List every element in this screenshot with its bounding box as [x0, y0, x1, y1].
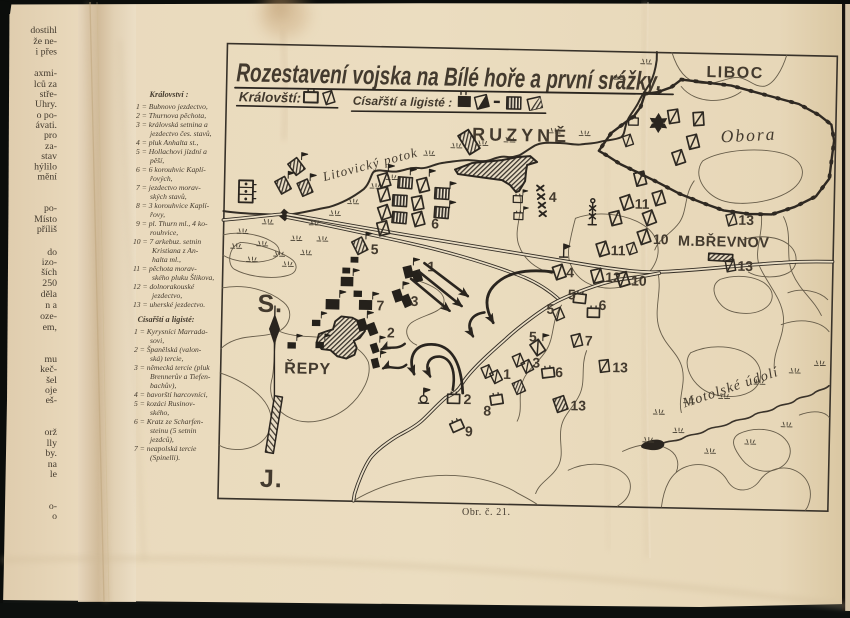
- svg-text:6: 6: [431, 215, 439, 231]
- svg-text:J.: J.: [260, 465, 283, 493]
- svg-text:ského pluku Šlikova,: ského pluku Šlikova,: [152, 272, 214, 282]
- svg-text:halta ml.,: halta ml.,: [152, 255, 181, 264]
- svg-text:pro: pro: [44, 130, 57, 141]
- svg-text:11: 11: [611, 242, 626, 258]
- svg-text:jezdectvo,: jezdectvo,: [151, 291, 182, 300]
- svg-text:mění: mění: [37, 172, 57, 183]
- svg-text:že ne-: že ne-: [33, 36, 57, 47]
- svg-text:4: 4: [566, 264, 574, 280]
- svg-text:řových,: řových,: [150, 174, 173, 183]
- svg-text:i přes: i přes: [36, 47, 58, 58]
- svg-text:eš-: eš-: [46, 395, 57, 406]
- svg-text:5 = Hollachovi jízdní a: 5 = Hollachovi jízdní a: [136, 147, 207, 156]
- svg-text:děla: děla: [41, 289, 58, 300]
- svg-text:11 = pěchota morav-: 11 = pěchota morav-: [133, 264, 197, 273]
- svg-text:Císařští a ligisté:: Císařští a ligisté:: [138, 315, 195, 324]
- svg-text:3: 3: [532, 354, 540, 370]
- svg-text:4 = bavorští harcovníci,: 4 = bavorští harcovníci,: [134, 390, 208, 399]
- svg-text:8 = 3 korouhvice Kaplí-: 8 = 3 korouhvice Kaplí-: [136, 201, 210, 210]
- svg-text:le: le: [50, 469, 58, 480]
- svg-text:axmi-: axmi-: [34, 68, 57, 79]
- svg-text:6: 6: [555, 364, 563, 380]
- svg-text:6: 6: [598, 297, 606, 313]
- svg-text:8: 8: [483, 402, 491, 418]
- svg-text:Kristiana z An-: Kristiana z An-: [151, 246, 199, 255]
- svg-text:ského,: ského,: [150, 408, 169, 417]
- svg-text:řovy,: řovy,: [150, 210, 165, 219]
- svg-text:2 = Thurnova pěchota,: 2 = Thurnova pěchota,: [136, 111, 206, 120]
- svg-text:7: 7: [585, 333, 593, 349]
- svg-text:příliš: příliš: [37, 224, 57, 235]
- svg-text:n a: n a: [45, 300, 57, 311]
- svg-text:steinu (5 setnin: steinu (5 setnin: [150, 426, 197, 435]
- svg-text:4 = pluk Anhalta st.,: 4 = pluk Anhalta st.,: [136, 138, 198, 147]
- svg-text:Královští:: Královští:: [239, 89, 302, 105]
- svg-text:LIBOC: LIBOC: [706, 64, 764, 82]
- svg-text:keč-: keč-: [40, 364, 57, 375]
- svg-text:5: 5: [371, 241, 379, 257]
- svg-text:M.BŘEVNOV: M.BŘEVNOV: [678, 231, 770, 251]
- svg-text:10: 10: [631, 273, 647, 289]
- svg-text:3 = německá tercie (pluk: 3 = německá tercie (pluk: [133, 363, 210, 372]
- svg-text:13 = uherské jezdectvo.: 13 = uherské jezdectvo.: [133, 300, 205, 309]
- svg-text:13: 13: [738, 212, 754, 228]
- svg-text:Brennerův a Tiefen-: Brennerův a Tiefen-: [150, 372, 211, 381]
- svg-text:9 = pl. Thurn ml., 4 ko-: 9 = pl. Thurn ml., 4 ko-: [136, 219, 208, 228]
- svg-text:Obr. č. 21.: Obr. č. 21.: [462, 507, 511, 518]
- svg-text:10: 10: [653, 231, 669, 247]
- svg-text:250: 250: [42, 278, 57, 289]
- svg-text:em,: em,: [43, 322, 57, 333]
- svg-text:2 = Španělská (valon-: 2 = Španělská (valon-: [134, 344, 202, 354]
- svg-text:ších: ších: [41, 267, 57, 278]
- svg-text:by.: by.: [45, 448, 57, 459]
- svg-text:5: 5: [529, 328, 537, 344]
- svg-text:13: 13: [570, 397, 586, 413]
- svg-text:6 = Kratz ze Scharfen-: 6 = Kratz ze Scharfen-: [134, 417, 204, 426]
- svg-text:11: 11: [635, 196, 650, 212]
- svg-text:3 = královská setnina a: 3 = královská setnina a: [135, 120, 208, 129]
- svg-text:rouhvice,: rouhvice,: [150, 228, 178, 237]
- svg-text:(Spinelli).: (Spinelli).: [150, 453, 180, 462]
- svg-text:5 = kozáci Rusinov-: 5 = kozáci Rusinov-: [134, 399, 195, 408]
- svg-text:jezdců),: jezdců),: [149, 435, 174, 444]
- svg-text:ských stavů,: ských stavů,: [150, 192, 187, 201]
- svg-text:2: 2: [387, 324, 395, 340]
- svg-text:orž: orž: [44, 427, 57, 438]
- svg-text:6 = 6 korouhvic Kaplí-: 6 = 6 korouhvic Kaplí-: [136, 165, 206, 174]
- svg-text:10 = 7 arkebuz. setnin: 10 = 7 arkebuz. setnin: [133, 237, 201, 246]
- svg-text:5: 5: [568, 286, 576, 302]
- svg-text:jezdectvo čes. stavů,: jezdectvo čes. stavů,: [149, 129, 212, 138]
- svg-text:3: 3: [410, 293, 418, 309]
- svg-text:S.: S.: [257, 290, 283, 319]
- svg-text:stav: stav: [41, 151, 57, 162]
- svg-text:13: 13: [612, 359, 628, 375]
- svg-text:Království :: Království :: [149, 90, 189, 99]
- svg-text:7 = neapolská tercie: 7 = neapolská tercie: [134, 444, 197, 453]
- svg-text:Císařští a ligisté :: Císařští a ligisté :: [353, 94, 453, 110]
- svg-text:1 = Kyrysníci Marrada-: 1 = Kyrysníci Marrada-: [134, 327, 208, 336]
- svg-text:dostihl: dostihl: [30, 25, 57, 36]
- svg-text:1 = Bubnovo jezdectvo,: 1 = Bubnovo jezdectvo,: [136, 102, 208, 111]
- svg-text:1: 1: [503, 366, 511, 382]
- svg-text:Uhry.: Uhry.: [35, 99, 57, 110]
- svg-text:sovi,: sovi,: [150, 336, 164, 345]
- svg-text:2: 2: [463, 391, 471, 407]
- svg-text:7: 7: [376, 297, 384, 313]
- svg-text:7 = jezdectvo morav-: 7 = jezdectvo morav-: [136, 183, 201, 192]
- svg-text:ŘEPY: ŘEPY: [284, 358, 331, 378]
- svg-text:12 = dolnorakouské: 12 = dolnorakouské: [133, 282, 195, 291]
- svg-text:bachův),: bachův),: [150, 381, 176, 390]
- svg-text:ská) tercie,: ská) tercie,: [150, 354, 184, 363]
- svg-text:pěší,: pěší,: [149, 156, 164, 165]
- svg-text:4: 4: [549, 189, 557, 205]
- svg-text:13: 13: [737, 258, 753, 274]
- svg-text:po-: po-: [44, 203, 57, 214]
- svg-text:9: 9: [465, 423, 473, 439]
- svg-text:5: 5: [546, 301, 554, 317]
- svg-text:o: o: [52, 511, 57, 522]
- svg-text:oze-: oze-: [40, 311, 57, 322]
- svg-text:RUZYNĚ: RUZYNĚ: [472, 123, 570, 146]
- svg-text:Obora: Obora: [720, 124, 777, 147]
